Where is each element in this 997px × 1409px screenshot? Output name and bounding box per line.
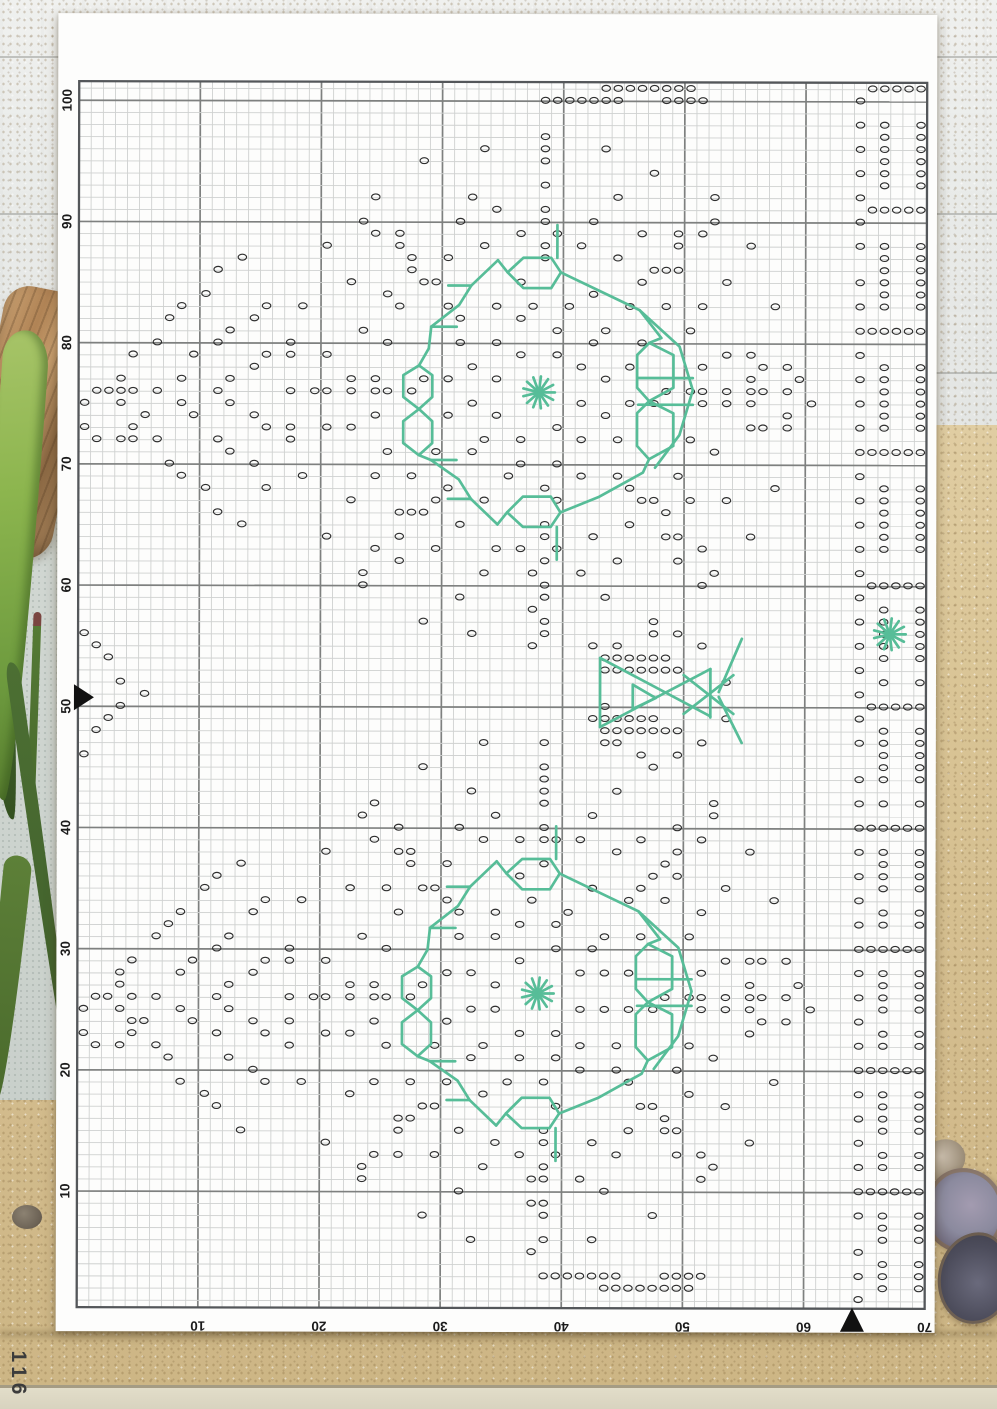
left-axis-label: 20 — [58, 1062, 73, 1077]
left-axis-label: 50 — [58, 699, 73, 714]
bottom-axis-label: 60 — [796, 1320, 811, 1333]
cross-stitch-chart-page: 10090807060504030201010203040506070 — [56, 13, 938, 1333]
left-axis-label: 10 — [57, 1183, 72, 1198]
bottom-board — [0, 1385, 997, 1409]
bottom-axis-label: 30 — [433, 1319, 448, 1333]
bottom-axis-label: 20 — [311, 1319, 326, 1333]
left-axis-label: 90 — [59, 214, 74, 229]
pebble — [12, 1205, 42, 1229]
bottom-axis-label: 40 — [554, 1319, 569, 1333]
center-marker-bottom — [840, 1308, 864, 1332]
stitch-chart-grid: 10090807060504030201010203040506070 — [56, 13, 938, 1333]
left-axis-label: 60 — [59, 577, 74, 592]
star-symbols — [522, 376, 906, 1010]
left-axis-label: 30 — [58, 941, 73, 956]
bottom-axis-label: 10 — [190, 1318, 205, 1333]
left-axis-label: 70 — [59, 456, 74, 471]
left-axis-label: 100 — [60, 89, 75, 112]
bottom-axis-label: 50 — [675, 1319, 690, 1333]
page-number: 116 — [6, 1346, 30, 1404]
left-axis-label: 40 — [58, 820, 73, 835]
bottom-axis-label: 70 — [917, 1320, 932, 1333]
left-axis-label: 80 — [59, 335, 74, 350]
